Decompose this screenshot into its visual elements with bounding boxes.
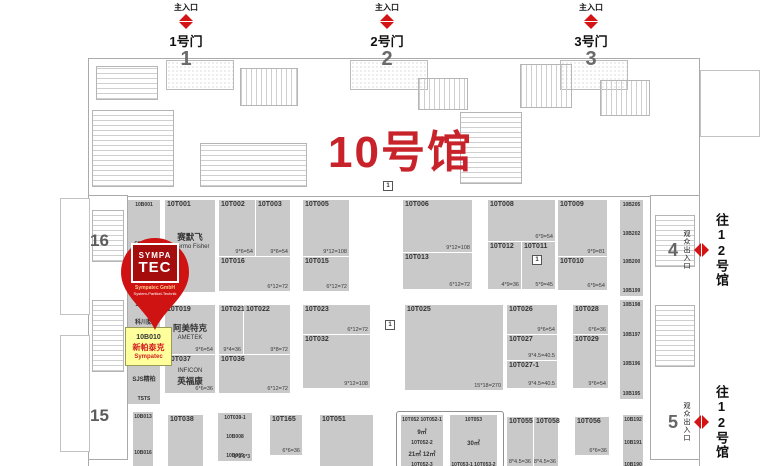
entrance-diamond-icon [584,14,598,29]
booth-dimensions: 4*9=36 [501,282,519,288]
sympatec-logo: SYMPA TEC Sympatec GmbH System-Partikel-… [128,243,182,296]
booth-10T005[interactable]: 10T0059*12=108 [303,200,349,256]
perimeter-booth-10B198[interactable]: 10B19810B19710B19610B195 [620,300,643,399]
booth-label: 10B199 [623,288,641,294]
booth-dimensions: 6*6=36 [282,448,300,454]
highlighted-booth-10B010[interactable]: 10B010 新帕泰克 Sympatec [125,327,172,366]
booth-id: 10T021 [221,306,245,313]
booth-10T165[interactable]: 10T1656*6=36 [270,415,302,455]
booth-10T022[interactable]: 10T0229*8=72 [244,305,290,354]
diamond-down [380,22,394,29]
booth-dimensions: 6*12=72 [267,386,288,392]
diamond-right [702,415,709,429]
gate-number: 2 [381,50,392,68]
booth-dimensions: 9*12=108 [446,245,470,251]
diamond-down [584,22,598,29]
booth-label: SJS精柏 [132,374,155,383]
perimeter-booth-SJS精柏[interactable]: SJS精柏TSTS [128,372,160,404]
booth-id: 10T013 [405,254,429,261]
perimeter-booth-10B205[interactable]: 10B20510B20210B20010B199 [620,200,643,296]
visitor-entrance-label: 观众出入口 [681,402,691,442]
booth-10T056[interactable]: 10T0566*6=36 [575,417,609,455]
booth-id: 10T055 [509,418,533,425]
facility-room [96,66,158,100]
booth-dimensions: 9*4.5=40.5 [528,381,555,387]
stairs [240,68,298,106]
booth-label: 10T053-1 10T053-2 [451,462,495,466]
booth-label: 30㎡ [467,438,480,447]
booth-dimensions: 9*6=54 [195,347,213,353]
booth-10T051[interactable]: 10T051 [320,415,373,466]
booth-dimensions: 9*6=54 [537,327,555,333]
booth-label: 10B192 [624,417,642,423]
booth-10T002[interactable]: 10T0029*6=54 [219,200,255,256]
booth-id: 10T036 [221,356,245,363]
booth-10T010[interactable]: 10T0106*9=54 [558,257,607,290]
booth-id: 10T015 [305,258,329,265]
booth-id: 10T022 [246,306,270,313]
pillar-marker: 1 [385,320,395,330]
booth-dimensions: 9*4=36 [223,347,241,353]
entrance-diamond-icon [179,14,193,29]
diamond-down [179,22,193,29]
booth-dimensions: 9*9=81 [587,249,605,255]
booth-10T011[interactable]: 10T0115*9=45 [522,242,555,289]
diamond-up [584,14,598,21]
sympatec-logo-box: SYMPA TEC [131,243,179,283]
facility-room [600,80,650,116]
gate-number: 1 [180,50,191,68]
booth-id: 10T032 [305,336,329,343]
main-entrance-label: 主入口 [579,2,603,13]
central-block [200,143,307,187]
exhibition-hall-floorplan: 10号馆 10T001赛默飞Thermo Fisher10T0029*6=541… [0,0,780,466]
booth-label: 10B202 [623,231,641,237]
booth-dimensions: 6*12=72 [449,282,470,288]
booth-id: 10T027 [509,336,533,343]
gate-top-3: 主入口3号门3 [543,2,639,68]
booth-id: 10T003 [258,201,282,208]
booth-10T013[interactable]: 10T0136*12=72 [403,253,472,289]
booth-id: 10T056 [577,418,601,425]
booth-label: 9㎡ [417,427,426,436]
booth-id: 10T011 [524,243,547,250]
diamond-right [702,243,709,257]
booth-id: 10T023 [305,306,329,313]
booth-id: 10T009 [560,201,584,208]
facility-room [655,305,695,367]
booth-dimensions: 8*4.5=36 [534,459,556,465]
booth-10T036[interactable]: 10T0366*12=72 [219,355,290,393]
booth-id: 10T008 [490,201,514,208]
pillar-marker: 1 [532,255,542,265]
diamond-up [179,14,193,21]
gate-left-16: 16 [90,231,109,251]
booth-10T038[interactable]: 10T038 [168,415,203,466]
perimeter-booth-10B192[interactable]: 10B19210B19110B190 [623,415,643,466]
booth-id: 10T010 [560,258,584,265]
highlight-booth-id: 10B010 [136,334,161,341]
booth-label: 10T053 [465,417,482,423]
booth-dimensions: 6*9=54 [587,283,605,289]
booth-dimensions: 6*6=36 [589,448,607,454]
diamond-left [694,415,701,429]
perimeter-booth-10B013[interactable]: 10B013 [133,412,153,448]
booth-10T032[interactable]: 10T0329*12=108 [303,335,370,388]
booth-dimensions: 6*9=54 [535,234,553,240]
right-wing [700,70,760,137]
booth-10T055[interactable]: 10T0558*4.5=36 [507,417,533,466]
booth-10T023[interactable]: 10T0236*12=72 [303,305,370,334]
facility-room [92,110,174,187]
booth-dimensions: 6*6=36 [195,386,213,392]
booth-id: 10T028 [575,306,599,313]
booth-id: 10T051 [322,416,346,423]
booth-dimensions: 5*9=45 [535,282,553,288]
gate-number: 3 [585,50,596,68]
booth-10T009[interactable]: 10T0099*9=81 [558,200,607,256]
logo-line2: TEC [139,260,172,275]
booth-dimensions: 9*4.5=40.5 [528,353,555,359]
booth-id: 10T027-1 [509,362,539,369]
booth-name: INFICON英福康 [165,368,215,387]
booth-dimensions: 15*18=270 [474,383,501,389]
booth-10T026[interactable]: 10T0269*6=54 [507,305,557,334]
logo-tagline: System-Partikel-Technik [134,291,177,296]
gate-number: 4 [668,240,678,261]
booth-10T058[interactable]: 10T0588*4.5=36 [534,417,558,466]
booth-name-line: AMETEK [178,335,203,341]
booth-label: 10B195 [623,391,641,397]
booth-label: TSTS [138,396,151,402]
booth-id: 10T025 [407,306,431,313]
booth-dimensions: 9*6=54 [270,249,288,255]
booth-10T008[interactable]: 10T0086*9=54 [488,200,555,241]
booth-10T003[interactable]: 10T0039*6=54 [256,200,290,256]
booth-10T025[interactable]: 10T02515*18=270 [405,305,503,390]
booth-dimensions: 6*12=72 [326,284,347,290]
perimeter-booth-10B016[interactable]: 10B016 [133,448,153,466]
gate-left-15: 15 [90,406,109,426]
booth-10T039-1[interactable]: 10T039-110B00810B0096*3 6*3 [218,413,252,461]
stairs [418,78,468,110]
stairs [520,64,572,108]
booth-10T027-1[interactable]: 10T027-19*4.5=40.5 [507,361,557,388]
booth-label: 10T052-2 [411,440,432,446]
booth-id: 10T001 [167,201,191,208]
direction-diamond-icon [694,243,709,257]
booth-label: 10B200 [623,259,641,265]
booth-label: 10B001 [135,202,153,208]
booth-10T037[interactable]: 10T037INFICON英福康6*6=36 [165,355,215,393]
booth-dimensions: 6*12=72 [347,327,368,333]
left-wing [60,335,90,452]
booth-id: 10T016 [221,258,245,265]
main-entrance-label: 主入口 [174,2,198,13]
booth-10T015[interactable]: 10T0156*12=72 [303,257,349,291]
booth-id: 10T029 [575,336,599,343]
booth-10T052[interactable]: 10T052 10T052-19㎡10T052-221㎡ 12㎡10T052-3 [401,415,443,466]
entrance-diamond-icon [380,14,394,29]
booth-label: 10B205 [623,202,641,208]
gate-top-2: 主入口2号门2 [339,2,435,68]
booth-id: 10T058 [536,418,560,425]
booth-10T029[interactable]: 10T0299*6=54 [573,335,608,388]
gate-number: 5 [668,412,678,433]
gate-right-4: 4观众出入口往12号馆 [668,205,731,295]
booth-10T012[interactable]: 10T0124*9=36 [488,242,521,289]
booth-10T028[interactable]: 10T0286*6=36 [573,305,608,334]
booth-label: 10T039-1 [224,415,245,421]
direction-diamond-icon [694,415,709,429]
booth-10T006[interactable]: 10T0069*12=108 [403,200,472,252]
highlight-name-cn: 新帕泰克 [133,342,165,353]
to-hall12-label: 往12号馆 [712,385,731,459]
booth-id: 10T165 [272,416,296,423]
booth-label: 10T052-3 [411,462,432,466]
booth-id: 10T005 [305,201,329,208]
booth-10T016[interactable]: 10T0166*12=72 [219,257,290,291]
to-hall12-label: 往12号馆 [712,213,731,287]
booth-dimensions: 6*3 6*3 [234,454,250,460]
diamond-up [380,14,394,21]
booth-10T053[interactable]: 10T05330㎡10T053-1 10T053-2 [450,415,497,466]
booth-id: 10T006 [405,201,429,208]
booth-label: 10B196 [623,361,641,367]
booth-label: 10B016 [134,450,152,456]
booth-label: 21㎡ 12㎡ [408,449,435,458]
booth-dimensions: 6*12=72 [267,284,288,290]
booth-label: 10B198 [623,302,641,308]
diamond-left [694,243,701,257]
main-entrance-label: 主入口 [375,2,399,13]
visitor-entrance-label: 观众出入口 [681,230,691,270]
booth-label: 10T052 10T052-1 [402,417,442,423]
highlight-name-en: Sympatec [134,354,162,360]
booth-label: 10B191 [624,440,642,446]
booth-dimensions: 9*12=108 [323,249,347,255]
gate-top-1: 主入口1号门1 [138,2,234,68]
hall-title: 10号馆 [328,116,473,180]
booth-name-line: INFICON [178,368,203,374]
booth-dimensions: 9*8=72 [270,347,288,353]
booth-dimensions: 9*6=54 [235,249,253,255]
booth-dimensions: 9*6=54 [588,381,606,387]
booth-label: 10B197 [623,332,641,338]
booth-dimensions: 8*4.5=36 [509,459,531,465]
booth-label: 10B008 [226,434,244,440]
booth-dimensions: 9*12=108 [344,381,368,387]
booth-id: 10T038 [170,416,194,423]
booth-10T021[interactable]: 10T0219*4=36 [219,305,243,354]
pillar-marker: 1 [383,181,393,191]
booth-dimensions: 6*6=36 [588,327,606,333]
left-wing [60,198,90,315]
booth-id: 10T002 [221,201,245,208]
booth-label: 10B190 [624,462,642,466]
booth-10T027[interactable]: 10T0279*4.5=40.5 [507,335,557,360]
booth-id: 10T012 [490,243,514,250]
gate-right-5: 5观众出入口往12号馆 [668,377,731,466]
booth-id: 10T026 [509,306,533,313]
booth-label: 10B013 [134,414,152,420]
